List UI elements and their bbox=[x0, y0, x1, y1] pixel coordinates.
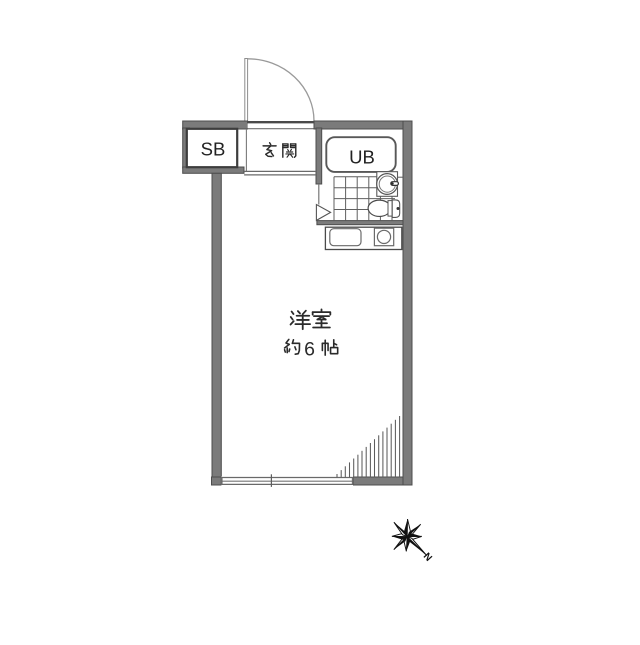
svg-text:6: 6 bbox=[304, 339, 315, 361]
svg-text:UB: UB bbox=[349, 146, 375, 167]
svg-text:SB: SB bbox=[201, 139, 226, 160]
